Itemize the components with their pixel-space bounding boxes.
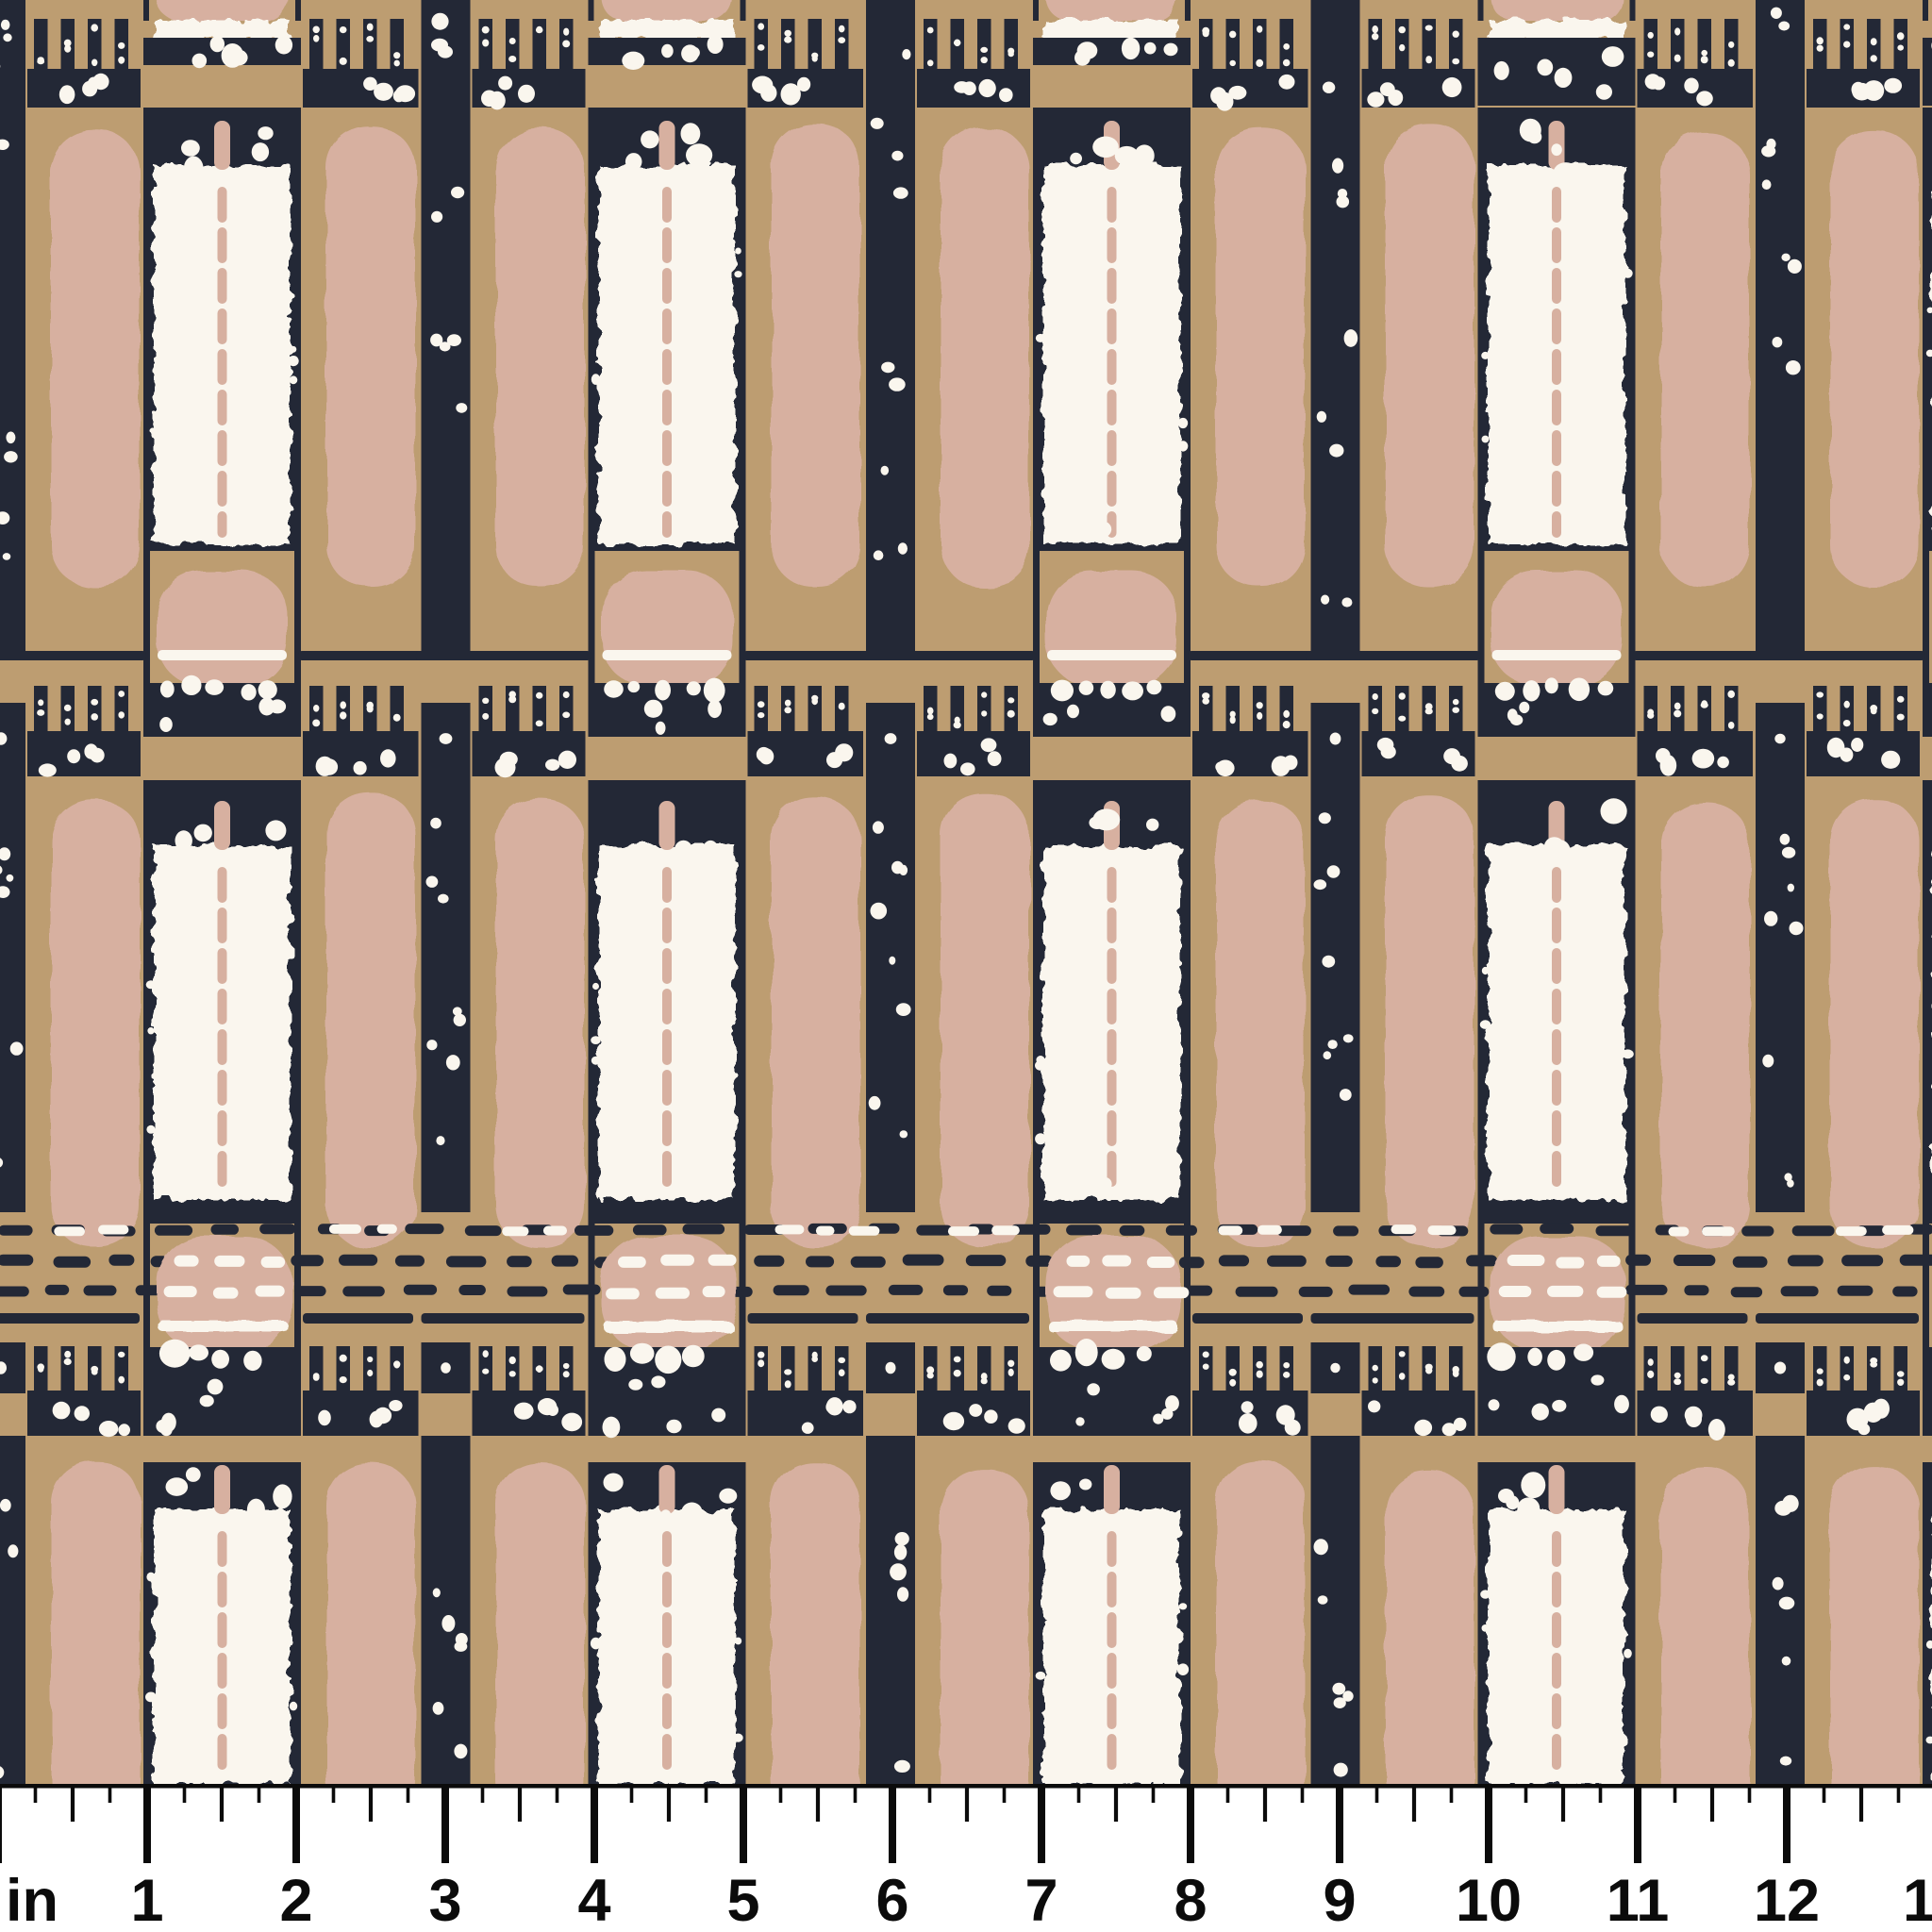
svg-text:11: 11 <box>1607 1868 1670 1932</box>
svg-text:7: 7 <box>1024 1868 1058 1932</box>
svg-text:5: 5 <box>726 1868 759 1932</box>
svg-text:4: 4 <box>577 1868 610 1932</box>
svg-text:3: 3 <box>428 1868 461 1932</box>
svg-text:in: in <box>6 1868 58 1932</box>
svg-text:10: 10 <box>1456 1868 1522 1932</box>
svg-text:1: 1 <box>130 1868 163 1932</box>
svg-text:9: 9 <box>1323 1868 1356 1932</box>
svg-text:8: 8 <box>1174 1868 1207 1932</box>
svg-text:2: 2 <box>279 1868 312 1932</box>
svg-text:6: 6 <box>875 1868 908 1932</box>
svg-text:13: 13 <box>1903 1868 1932 1932</box>
svg-text:12: 12 <box>1754 1868 1820 1932</box>
